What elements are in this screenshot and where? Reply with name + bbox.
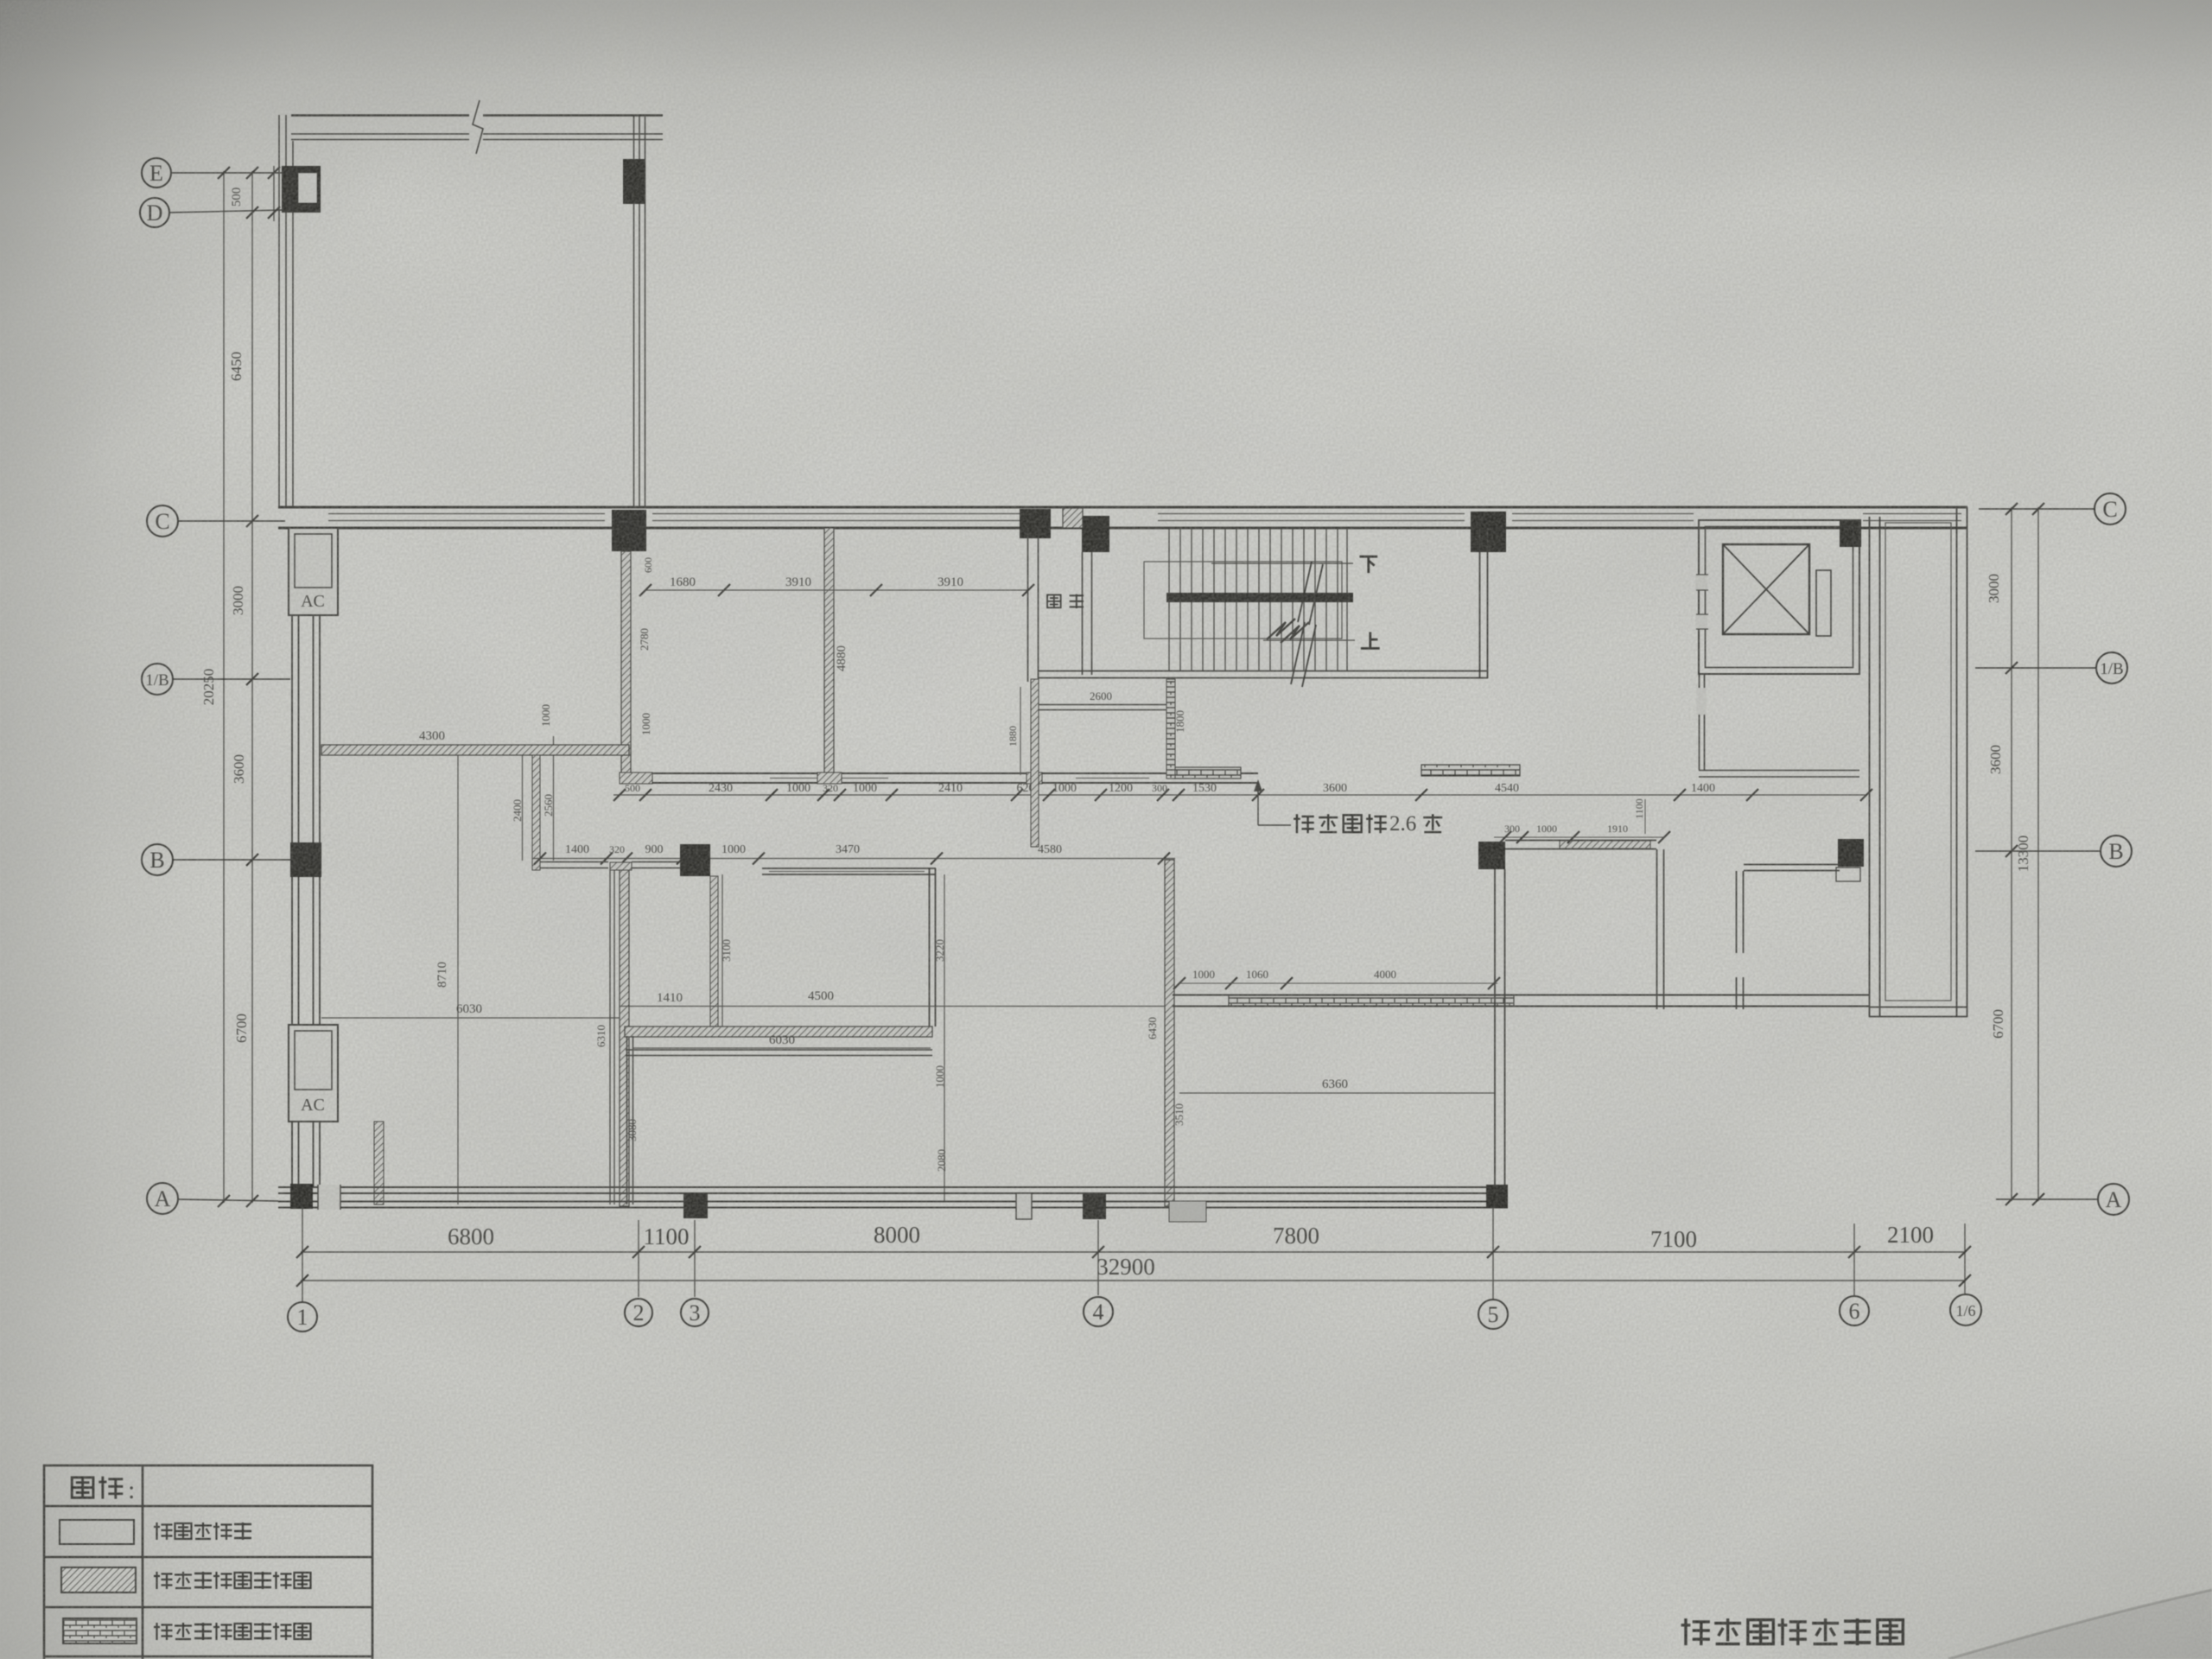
svg-text:600: 600: [642, 557, 654, 573]
svg-text:7800: 7800: [1273, 1223, 1319, 1249]
svg-text:3910: 3910: [785, 575, 811, 589]
svg-text:7100: 7100: [1650, 1226, 1697, 1252]
svg-text:1910: 1910: [1607, 823, 1628, 835]
svg-text::: :: [128, 1476, 135, 1504]
svg-text:2780: 2780: [638, 628, 651, 651]
svg-text:8000: 8000: [874, 1222, 920, 1248]
svg-text:3600: 3600: [231, 754, 247, 784]
svg-text:5: 5: [1488, 1302, 1499, 1327]
svg-text:1410: 1410: [657, 991, 683, 1005]
svg-text:500: 500: [230, 188, 244, 207]
svg-text:2600: 2600: [1090, 690, 1112, 702]
svg-text:1000: 1000: [1052, 782, 1077, 795]
svg-text:C: C: [155, 509, 169, 534]
svg-text:3100: 3100: [720, 939, 733, 962]
svg-text:6800: 6800: [448, 1224, 494, 1249]
svg-text:3000: 3000: [1986, 574, 2002, 603]
svg-text:6450: 6450: [228, 352, 245, 381]
svg-text:1/6: 1/6: [1955, 1302, 1975, 1319]
svg-text:300: 300: [1504, 823, 1520, 835]
svg-text:1000: 1000: [639, 713, 652, 735]
svg-text:1880: 1880: [1007, 726, 1019, 747]
svg-text:1/B: 1/B: [2100, 660, 2123, 678]
svg-text:AC: AC: [301, 1096, 325, 1115]
svg-text:6700: 6700: [233, 1014, 250, 1043]
svg-text:1/B: 1/B: [145, 671, 168, 690]
svg-text:3220: 3220: [933, 939, 946, 962]
svg-text:320: 320: [823, 782, 838, 794]
svg-text:1000: 1000: [933, 1065, 946, 1088]
svg-text:3510: 3510: [1173, 1103, 1185, 1126]
svg-text:2080: 2080: [935, 1149, 948, 1172]
svg-text:1100: 1100: [1633, 798, 1645, 819]
svg-text:6030: 6030: [769, 1033, 795, 1047]
svg-text:4880: 4880: [835, 645, 849, 671]
svg-text:4580: 4580: [1038, 843, 1062, 856]
svg-text:2: 2: [633, 1300, 645, 1325]
svg-text:1000: 1000: [853, 782, 877, 795]
svg-text:1000: 1000: [721, 843, 746, 856]
svg-text:500: 500: [625, 782, 640, 794]
svg-text:1400: 1400: [565, 843, 589, 856]
svg-text:1: 1: [297, 1305, 308, 1330]
svg-text:4500: 4500: [808, 989, 834, 1003]
svg-text:6430: 6430: [1146, 1017, 1159, 1039]
svg-text:300: 300: [1152, 782, 1167, 794]
svg-text:1680: 1680: [670, 575, 696, 589]
svg-text:A: A: [2106, 1187, 2122, 1212]
svg-text:3: 3: [690, 1300, 701, 1325]
svg-text:3000: 3000: [230, 586, 246, 615]
svg-text:2430: 2430: [709, 782, 733, 795]
svg-text:3910: 3910: [938, 575, 963, 589]
svg-text:1000: 1000: [1192, 968, 1215, 981]
svg-text:1060: 1060: [1246, 968, 1268, 981]
svg-text:2410: 2410: [938, 782, 963, 795]
svg-text:3600: 3600: [1323, 782, 1347, 795]
svg-text:6030: 6030: [456, 1002, 482, 1016]
svg-text:8710: 8710: [435, 962, 449, 988]
svg-text:1800: 1800: [1173, 710, 1186, 733]
svg-text:1000: 1000: [786, 782, 810, 795]
svg-text:3600: 3600: [1987, 745, 2004, 774]
svg-text:C: C: [2102, 497, 2117, 522]
svg-text:1400: 1400: [1691, 782, 1715, 795]
svg-text:B: B: [2108, 839, 2123, 864]
svg-text:D: D: [147, 200, 163, 226]
svg-text:4300: 4300: [419, 729, 445, 743]
svg-text:6700: 6700: [1990, 1009, 2006, 1039]
svg-text:B: B: [149, 848, 164, 873]
svg-text:1000: 1000: [539, 704, 552, 727]
svg-text:6: 6: [1849, 1299, 1860, 1324]
svg-text:1200: 1200: [1109, 782, 1133, 795]
svg-text:4000: 4000: [1374, 968, 1396, 981]
svg-text:4: 4: [1093, 1300, 1104, 1325]
svg-text:1000: 1000: [1536, 823, 1557, 835]
svg-text:3080: 3080: [626, 1119, 639, 1141]
svg-text:2.6: 2.6: [1389, 812, 1416, 836]
svg-text:3470: 3470: [836, 843, 860, 856]
svg-text:900: 900: [645, 843, 664, 856]
svg-text:320: 320: [609, 843, 625, 855]
svg-text:E: E: [149, 161, 163, 186]
svg-text:20250: 20250: [200, 669, 217, 706]
svg-text:4540: 4540: [1495, 782, 1519, 795]
svg-text:6310: 6310: [594, 1025, 607, 1047]
svg-text:1100: 1100: [644, 1224, 690, 1249]
svg-text:A: A: [155, 1186, 171, 1211]
svg-text:2560: 2560: [542, 794, 555, 817]
svg-text:2100: 2100: [1887, 1222, 1934, 1248]
svg-text:6360: 6360: [1322, 1077, 1348, 1091]
svg-text:AC: AC: [301, 592, 325, 611]
svg-text:2400: 2400: [511, 799, 524, 822]
svg-text:13300: 13300: [2015, 836, 2031, 873]
svg-text:32900: 32900: [1096, 1254, 1155, 1280]
svg-text:1530: 1530: [1192, 782, 1217, 795]
